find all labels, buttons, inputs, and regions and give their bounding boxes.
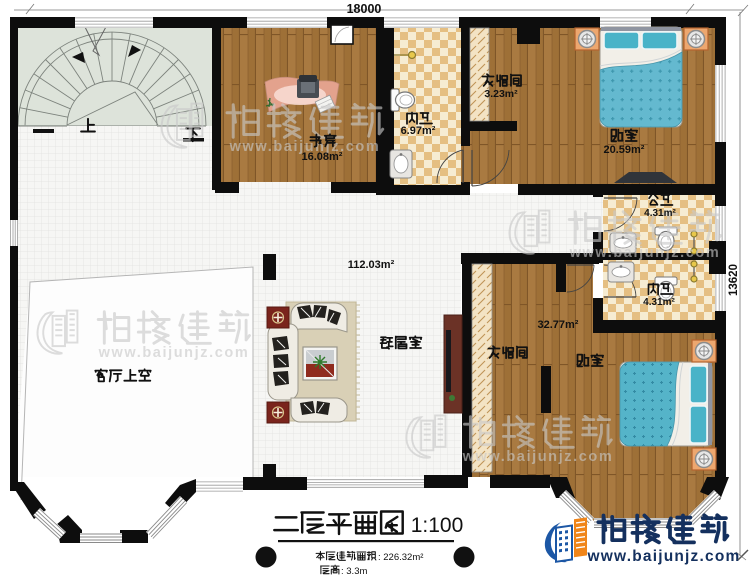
svg-text:6.97m²: 6.97m² bbox=[401, 125, 436, 137]
svg-text:16.08m²: 16.08m² bbox=[302, 151, 343, 163]
svg-text:4.31m²: 4.31m² bbox=[643, 297, 675, 308]
svg-text:3.23m²: 3.23m² bbox=[484, 88, 518, 100]
svg-text:www.baijunjz.com: www.baijunjz.com bbox=[98, 345, 250, 361]
svg-text:www.baijunjz.com: www.baijunjz.com bbox=[462, 449, 614, 465]
svg-text:www.baijunjz.com: www.baijunjz.com bbox=[569, 245, 721, 261]
svg-text:32.77m²: 32.77m² bbox=[538, 319, 579, 331]
svg-text:4.31m²: 4.31m² bbox=[644, 208, 676, 219]
svg-text:1:100: 1:100 bbox=[411, 514, 464, 537]
svg-text:13620: 13620 bbox=[728, 264, 740, 296]
svg-text:: 3.3m: : 3.3m bbox=[341, 566, 367, 577]
svg-text:112.03m²: 112.03m² bbox=[348, 259, 395, 271]
svg-text:20.59m²: 20.59m² bbox=[604, 144, 645, 156]
svg-text:www.baijunjz.com: www.baijunjz.com bbox=[587, 548, 741, 565]
svg-text:18000: 18000 bbox=[347, 2, 382, 16]
svg-text:: 226.32m²: : 226.32m² bbox=[378, 552, 423, 563]
